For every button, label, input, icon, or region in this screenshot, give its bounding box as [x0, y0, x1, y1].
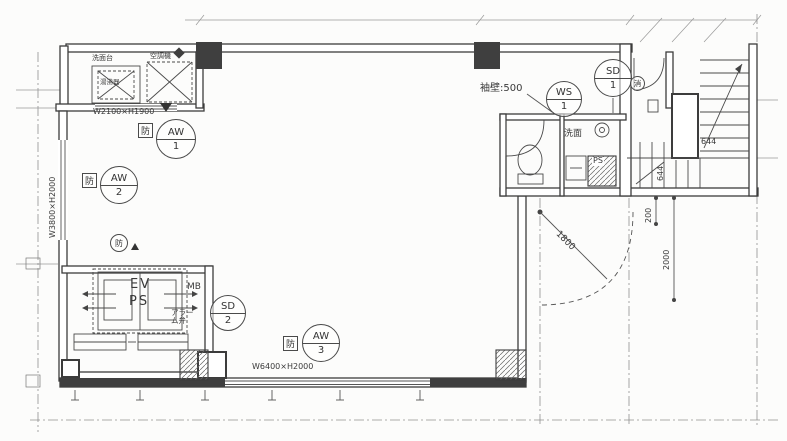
window1-size-label: W2100×H1900 [93, 108, 154, 117]
badge-tag: SD [211, 296, 245, 313]
kitchen-heater-label: 湯沸器 [100, 79, 120, 86]
window2-size-label: W3800×H2000 [49, 177, 58, 238]
extinguisher-mark: 消 [630, 76, 645, 91]
base-ticks [71, 390, 424, 400]
fire-mark-box-2: 防 [82, 173, 97, 188]
fire-mark-text: 防 [141, 124, 150, 137]
depth-dim: 2000 [663, 250, 672, 270]
wing-wall-note: 袖壁:500 [480, 83, 522, 94]
badge-number: 1 [595, 78, 631, 97]
badge-number: 2 [211, 313, 245, 331]
ws1-badge: WS 1 [546, 81, 582, 117]
badge-number: 3 [303, 343, 339, 362]
kitchen-unit-left-label: 洗面台 [92, 55, 113, 63]
fire-mark-box-1: 防 [138, 123, 153, 138]
kitchen-unit-right-label: 空調機 [150, 53, 171, 61]
fire-mark-text: 防 [85, 174, 94, 187]
floor-plan: 洗面台 空調機 湯沸器 W2100×H1900 防 AW 1 防 AW 2 W3… [0, 0, 787, 441]
window1-badge: AW 1 [156, 119, 196, 159]
dimension-lines [527, 94, 676, 305]
pipe-space-label: PS [592, 157, 604, 166]
sd1-badge: SD 1 [594, 59, 632, 97]
alarm-valve-label: アラーム弁 [171, 309, 198, 326]
fire-mark-round: 防 [110, 234, 128, 252]
badge-tag: SD [595, 60, 631, 78]
badge-tag: AW [303, 325, 339, 343]
gap-dim: 200 [645, 208, 654, 223]
sd2-badge: SD 2 [210, 295, 246, 331]
badge-number: 1 [547, 99, 581, 117]
badge-tag: WS [547, 82, 581, 99]
badge-tag: AW [157, 120, 195, 139]
stair-dim-vertical: 644 [657, 166, 666, 181]
fire-mark-box-3: 防 [283, 336, 298, 351]
fire-mark-text: 防 [286, 337, 295, 350]
fire-mark-text: 防 [115, 238, 123, 249]
fixtures [74, 58, 749, 350]
meter-box-label: MB [187, 283, 201, 293]
elevator-label: EV [130, 278, 151, 292]
window2-badge: AW 2 [100, 166, 138, 204]
stair-dim-horizontal: 644 [701, 138, 716, 147]
window3-size-label: W6400×H2000 [252, 363, 313, 372]
badge-tag: AW [101, 167, 137, 185]
badge-number: 2 [101, 185, 137, 204]
pipe-shaft-label: PS [129, 295, 149, 309]
plan-linework [0, 0, 787, 441]
extinguisher-text: 消 [634, 78, 642, 89]
window3-badge: AW 3 [302, 324, 340, 362]
badge-number: 1 [157, 139, 195, 159]
washroom-label: 洗面 [564, 130, 582, 140]
